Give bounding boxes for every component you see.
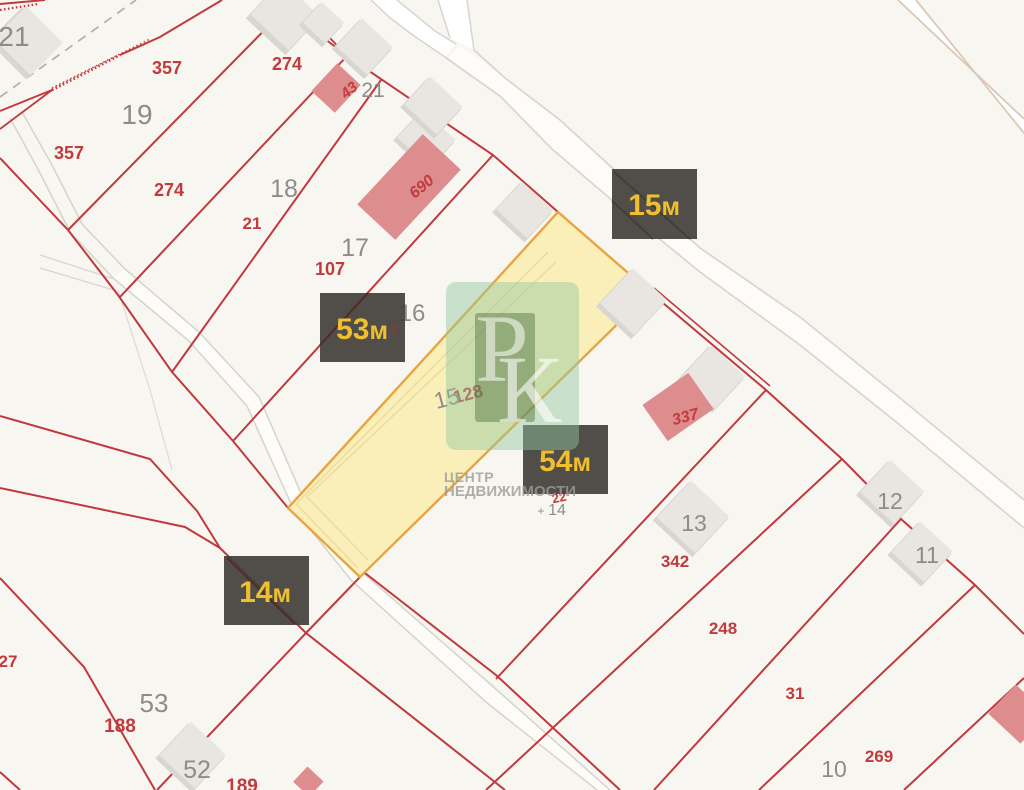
- svg-text:274: 274: [272, 54, 302, 74]
- svg-text:27: 27: [0, 652, 17, 671]
- svg-text:357: 357: [152, 58, 182, 78]
- svg-text:21: 21: [243, 214, 262, 233]
- svg-text:19: 19: [121, 99, 152, 130]
- svg-text:31: 31: [786, 684, 805, 703]
- svg-text:269: 269: [865, 747, 893, 766]
- svg-text:342: 342: [661, 552, 689, 571]
- svg-text:НЕДВИЖИМОСТИ: НЕДВИЖИМОСТИ: [444, 483, 576, 500]
- svg-text:52: 52: [183, 756, 211, 784]
- svg-text:107: 107: [315, 259, 345, 279]
- svg-text:13: 13: [681, 510, 707, 536]
- svg-text:11: 11: [915, 542, 939, 568]
- svg-text:12: 12: [877, 488, 903, 514]
- svg-text:К: К: [497, 336, 562, 443]
- svg-text:357: 357: [54, 143, 84, 163]
- svg-text:274: 274: [154, 180, 184, 200]
- svg-text:21: 21: [0, 21, 30, 52]
- svg-text:188: 188: [104, 716, 136, 737]
- svg-text:18: 18: [270, 175, 298, 203]
- svg-text:14: 14: [548, 502, 566, 519]
- svg-text:248: 248: [709, 619, 737, 638]
- svg-text:2: 2: [390, 321, 398, 338]
- svg-text:10: 10: [821, 756, 847, 782]
- svg-text:17: 17: [341, 234, 369, 262]
- svg-text:53: 53: [140, 688, 169, 718]
- svg-text:189: 189: [226, 776, 258, 790]
- svg-text:53м: 53м: [336, 313, 388, 346]
- svg-text:+: +: [537, 504, 544, 518]
- svg-text:21: 21: [361, 79, 384, 102]
- svg-text:14м: 14м: [239, 576, 291, 609]
- svg-text:15м: 15м: [628, 189, 680, 222]
